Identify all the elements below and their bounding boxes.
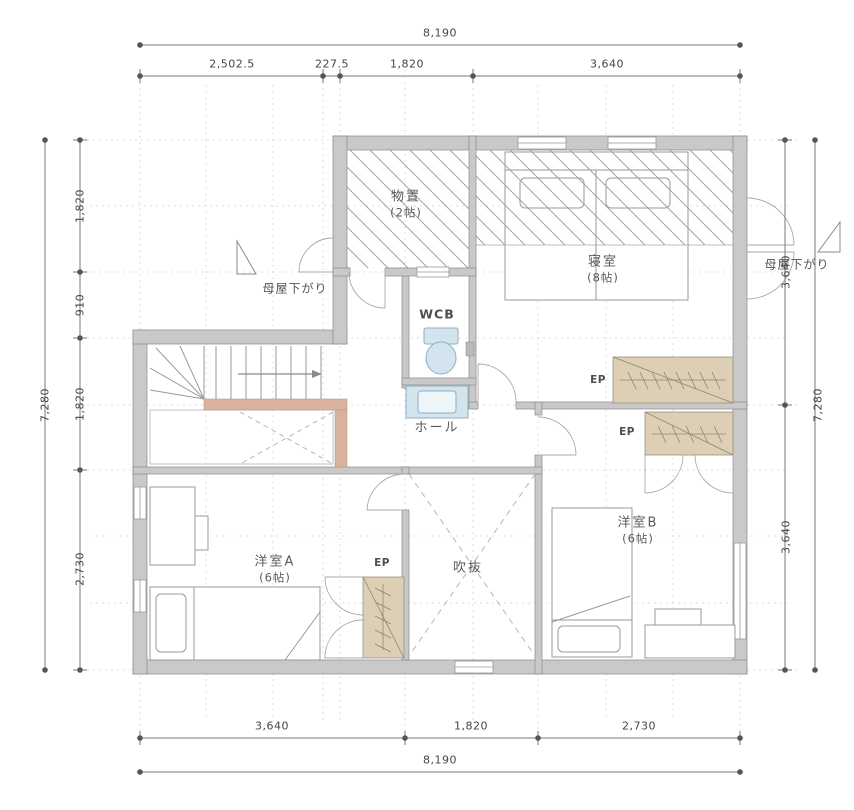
door-room-a — [367, 474, 405, 510]
storage-name: 物置 — [390, 190, 422, 207]
room-label-void: 吹抜 — [453, 561, 483, 578]
room-label-room-a: 洋室A (6帖) — [255, 555, 296, 586]
dim-bottom-seg-1: 3,640 — [255, 720, 289, 733]
wall-room-a-east-a — [402, 467, 409, 474]
floor-plan-canvas: 8,190 2,502.5 227.5 1,820 3,640 3,640 1,… — [0, 0, 854, 810]
closet-b-door-right — [695, 455, 733, 493]
closet-a-door-top — [325, 577, 363, 615]
room-label-bedroom: 寝室 (8帖) — [587, 255, 619, 286]
moya-sagari-label-left: 母屋下がり — [262, 280, 327, 297]
dim-right-seg-2: 3,640 — [780, 520, 793, 554]
toilet-bowl — [426, 342, 456, 374]
dim-left-seg-2: 910 — [74, 294, 87, 317]
room-b-name: 洋室B — [618, 516, 659, 533]
wall-notch-vertical — [333, 136, 347, 344]
moya-triangle-right — [818, 222, 840, 252]
bedroom-size: (8帖) — [587, 272, 619, 286]
room-a-desk — [150, 487, 208, 565]
wall-room-b-west-b — [535, 455, 542, 674]
dim-top-overall: 8,190 — [423, 27, 457, 40]
ep-label-room-a: EP — [374, 557, 390, 569]
room-a-bed — [150, 587, 320, 660]
wall-notch-horizontal — [133, 330, 347, 344]
dim-bottom-seg-2: 1,820 — [454, 720, 488, 733]
room-label-storage: 物置 (2帖) — [390, 190, 422, 221]
fixtures — [406, 328, 474, 418]
room-b-size: (6帖) — [618, 533, 659, 547]
room-a-name: 洋室A — [255, 555, 296, 572]
door-storage — [349, 272, 385, 308]
wall-bedroom-south-a — [469, 402, 478, 409]
wall-bottom — [133, 660, 747, 674]
stairwell-void-x — [240, 412, 333, 464]
washbasin-bowl — [418, 391, 456, 413]
closet-b-door-left — [645, 455, 683, 493]
dim-bottom-seg-3: 2,730 — [622, 720, 656, 733]
dim-top-seg-1: 2,502.5 — [209, 58, 255, 71]
stair-handrail — [204, 399, 347, 467]
casement-window-right-upper — [747, 198, 794, 245]
casement-window-notch — [299, 238, 333, 272]
dim-bottom-overall: 8,190 — [423, 754, 457, 767]
dim-left-seg-4: 2,730 — [74, 552, 87, 586]
door-bedroom — [478, 364, 516, 402]
closet-a-door-bottom — [325, 620, 363, 658]
furniture — [150, 487, 735, 660]
wall-middle-horizontal — [133, 467, 542, 474]
dim-top-seg-2: 227.5 — [315, 58, 349, 71]
dim-left-overall: 7,280 — [39, 388, 52, 422]
storage-size: (2帖) — [390, 207, 422, 221]
wall-wc-west — [402, 268, 409, 388]
wall-storage-south-a — [333, 268, 350, 276]
moya-triangle-left — [237, 241, 256, 274]
bedroom-hatch — [476, 150, 733, 245]
room-label-room-b: 洋室B (6帖) — [618, 516, 659, 547]
wall-room-b-west-a — [535, 402, 542, 415]
room-a-size: (6帖) — [255, 572, 296, 586]
dim-top-seg-3: 1,820 — [390, 58, 424, 71]
room-label-wc: WCB — [419, 307, 455, 322]
moya-sagari-label-right: 母屋下がり — [764, 256, 829, 273]
dim-left-seg-3: 1,820 — [74, 387, 87, 421]
room-b-desk — [645, 609, 735, 658]
bedroom-name: 寝室 — [587, 255, 619, 272]
paper-holder — [466, 342, 474, 356]
dim-left-seg-1: 1,820 — [74, 189, 87, 223]
wall-wc-south — [402, 378, 476, 385]
ep-label-bedroom: EP — [590, 374, 606, 386]
dim-top-seg-4: 3,640 — [590, 58, 624, 71]
dim-right-overall: 7,280 — [812, 388, 825, 422]
door-room-b — [538, 417, 576, 455]
floorplan-drawing — [0, 0, 854, 810]
room-label-hall: ホール — [414, 421, 459, 438]
ep-label-room-b: EP — [619, 426, 635, 438]
